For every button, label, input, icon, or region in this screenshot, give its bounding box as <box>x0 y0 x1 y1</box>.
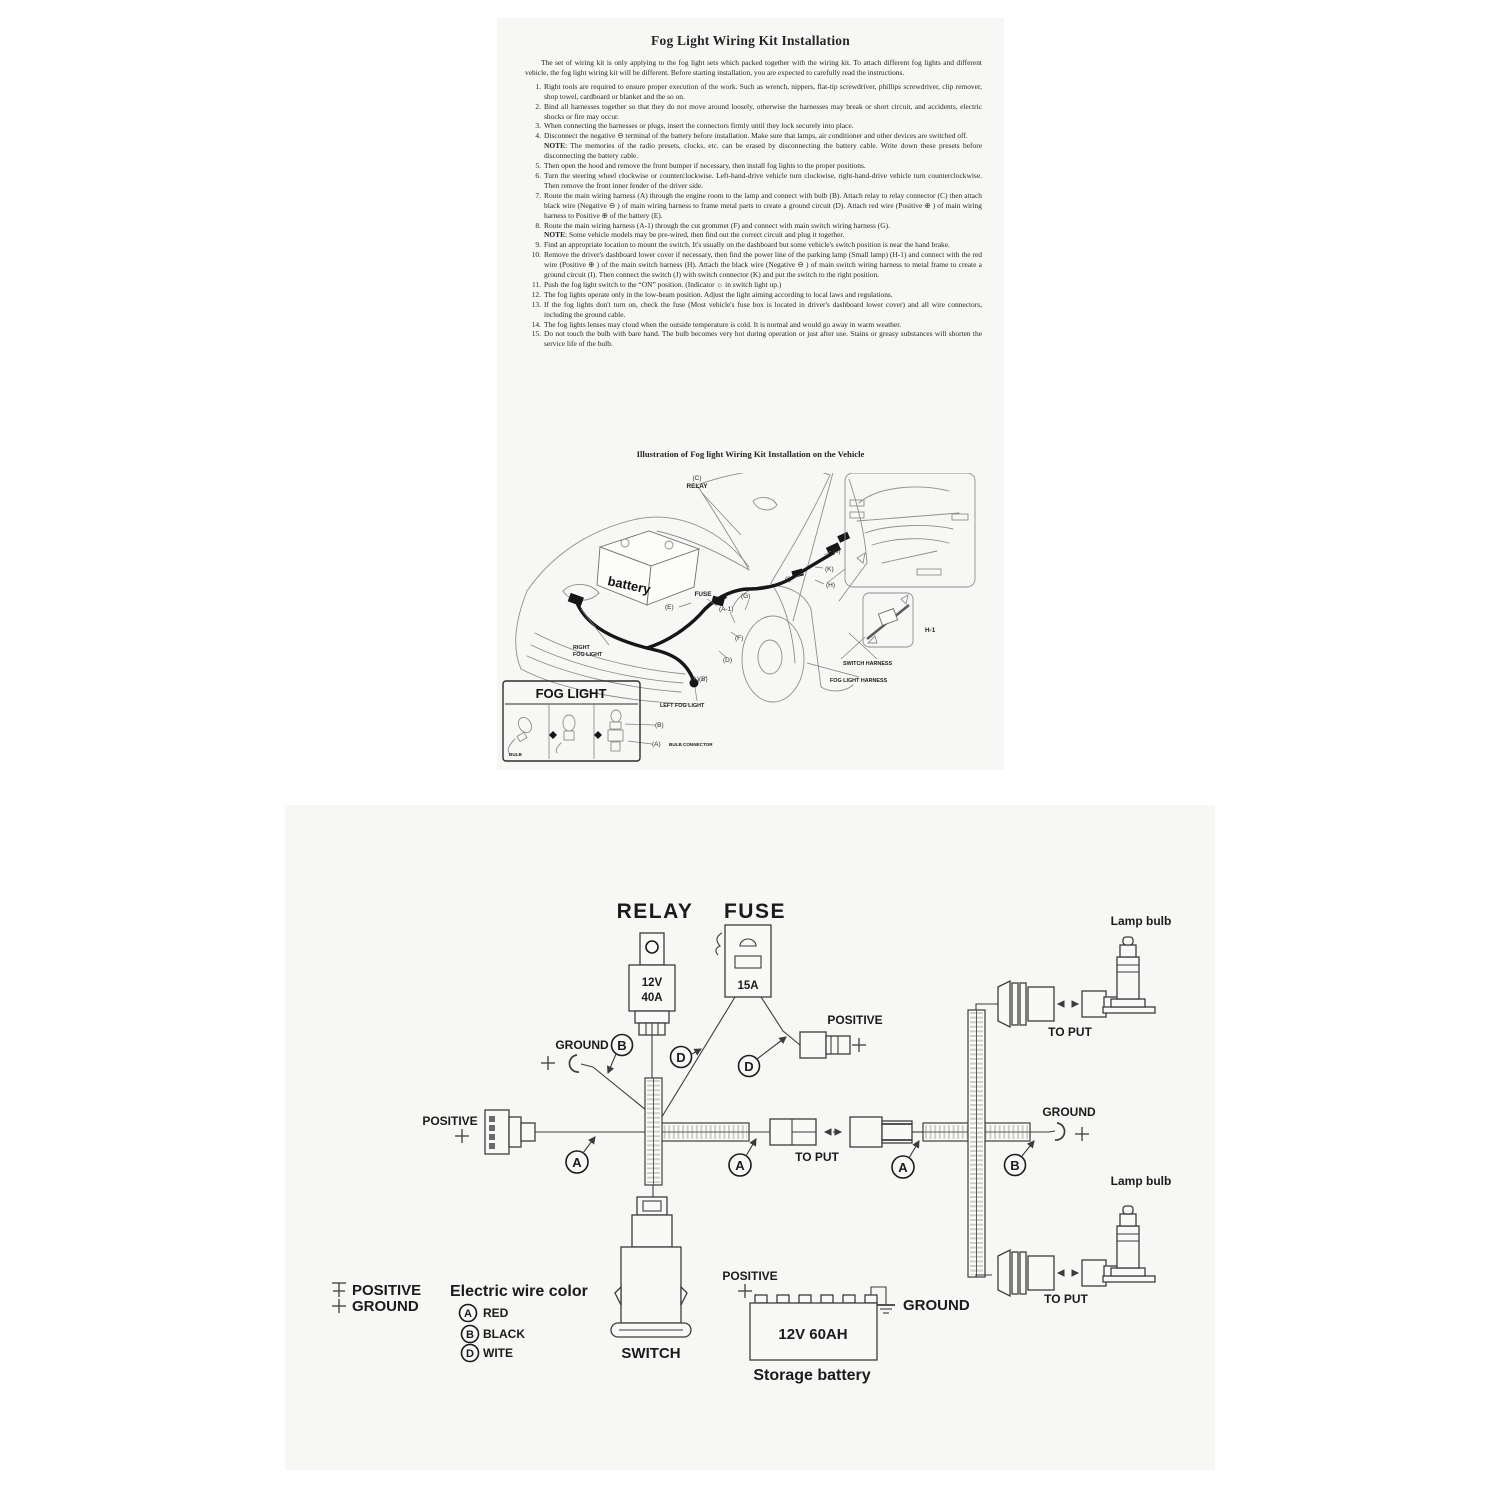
code-letter: B <box>1010 1158 1019 1173</box>
item-number: 5. <box>527 161 541 171</box>
legend-symbols <box>332 1283 346 1313</box>
label-switch-harness: SWITCH HARNESS <box>843 661 893 667</box>
ground-lug-right <box>1049 1123 1089 1141</box>
item-number: 11. <box>527 280 541 290</box>
loom-horizontal-left <box>657 1123 749 1141</box>
legend-entry-a: A RED <box>460 1305 509 1322</box>
list-item: 13.If the fog lights don't turn on, chec… <box>544 300 982 320</box>
label-f: (F) <box>735 635 743 642</box>
vehicle-illustration: battery (C) RELAY <box>497 473 1004 769</box>
item-text: Then open the hood and remove the front … <box>544 161 866 170</box>
wire-code-a2: A <box>729 1139 756 1176</box>
switch-illustration <box>611 1197 691 1337</box>
item-number: 10. <box>527 250 541 260</box>
list-item: 11.Push the fog light switch to the “ON”… <box>544 280 982 290</box>
fog-light-parts-box: FOG LIGHT BULB <box>503 681 640 761</box>
battery-rating: 12V 60AH <box>778 1326 847 1343</box>
item-text: Right tools are required to ensure prope… <box>544 82 982 101</box>
label-a1: (A-1) <box>719 606 733 613</box>
code-letter: A <box>572 1155 582 1170</box>
list-item: 1.Right tools are required to ensure pro… <box>544 82 982 102</box>
legend-ground: GROUND <box>352 1298 419 1315</box>
label-h1: H-1 <box>925 627 936 634</box>
item-text: Bind all harnesses together so that they… <box>544 102 982 121</box>
item-text: Push the fog light switch to the “ON” po… <box>544 280 781 289</box>
relay-amps: 40A <box>641 992 662 1004</box>
legend-entry-b: B BLACK <box>462 1326 526 1343</box>
label-relay: RELAY <box>686 483 708 490</box>
battery-label: Storage battery <box>753 1367 870 1384</box>
item-number: 9. <box>527 240 541 250</box>
item-text: Route the main wiring harness (A) throug… <box>544 191 982 220</box>
instruction-text-block: Fog Light Wiring Kit Installation The se… <box>497 18 1004 472</box>
item-number: 6. <box>527 171 541 181</box>
item-text: The fog lights operate only in the low-b… <box>544 290 893 299</box>
note: NOTE: Some vehicle models may be pre-wir… <box>544 230 982 240</box>
note-text: : Some vehicle models may be pre-wired, … <box>565 230 844 239</box>
list-item: 15.Do not touch the bulb with bare hand.… <box>544 329 982 349</box>
label-left-fog: LEFT FOG LIGHT <box>660 703 705 709</box>
label-a: (A) <box>652 741 661 748</box>
positive-label-battery: POSITIVE <box>722 1269 777 1283</box>
item-number: 3. <box>527 121 541 131</box>
legend-entry-d: D WITE <box>462 1345 514 1362</box>
positive-label-left: POSITIVE <box>422 1114 477 1128</box>
item-number: 12. <box>527 290 541 300</box>
fuse-amps: 15A <box>737 980 758 992</box>
illustration-title: Illustration of Fog light Wiring Kit Ins… <box>497 449 1004 459</box>
positive-label-fuse: POSITIVE <box>827 1013 882 1027</box>
positive-connector-fuse <box>800 1032 866 1058</box>
item-number: 8. <box>527 221 541 231</box>
item-number: 4. <box>527 131 541 141</box>
wire-code-a3: A <box>892 1141 919 1178</box>
item-text: Turn the steering wheel clockwise or cou… <box>544 171 982 190</box>
item-number: 15. <box>527 329 541 339</box>
loom-vertical-right <box>968 1010 985 1277</box>
item-number: 13. <box>527 300 541 310</box>
item-text: If the fog lights don't turn on, check t… <box>544 300 982 319</box>
h1-inset <box>863 593 913 647</box>
label-j: (J) <box>833 548 841 555</box>
list-item: 7.Route the main wiring harness (A) thro… <box>544 191 982 221</box>
lamp-wire-top <box>976 1004 998 1010</box>
switch-label: SWITCH <box>621 1345 680 1362</box>
code-letter: A <box>735 1158 745 1173</box>
label-e: (E) <box>665 604 674 611</box>
item-number: 1. <box>527 82 541 92</box>
to-put-label-top: TO PUT <box>1048 1025 1092 1039</box>
item-text: Find an appropriate location to mount th… <box>544 240 950 249</box>
wire-code-d2: D <box>739 1037 787 1077</box>
legend-title: Electric wire color <box>450 1283 588 1300</box>
lamp-bulb-label-top: Lamp bulb <box>1111 914 1172 928</box>
list-item: 2.Bind all harnesses together so that th… <box>544 102 982 122</box>
ground-label-right: GROUND <box>1042 1105 1096 1119</box>
label-d: (D) <box>723 657 732 664</box>
list-item: 3.When connecting the harnesses or plugs… <box>544 121 982 131</box>
label-bulb: BULB <box>509 752 522 757</box>
label-k: (K) <box>825 566 834 573</box>
fuse-illustration: 15A <box>716 925 771 997</box>
list-item: 9.Find an appropriate location to mount … <box>544 240 982 250</box>
intro-paragraph: The set of wiring kit is only applying t… <box>525 58 982 78</box>
lamp-socket-bottom <box>998 1206 1155 1296</box>
wire-code-d1: D <box>671 1047 702 1068</box>
note-label: NOTE <box>544 141 565 150</box>
item-number: 7. <box>527 191 541 201</box>
relay-illustration: 12V 40A <box>629 933 675 1035</box>
item-text: Remove the driver's dashboard lower cove… <box>544 250 982 279</box>
list-item: 14.The fog lights lenses may cloud when … <box>544 320 982 330</box>
item-text: Do not touch the bulb with bare hand. Th… <box>544 329 982 348</box>
fuse-wire-right <box>761 997 800 1045</box>
relay-volts: 12V <box>642 977 663 989</box>
legend-color: BLACK <box>483 1327 525 1341</box>
battery-illustration: battery <box>597 531 699 605</box>
storage-battery: 12V 60AH <box>738 1284 895 1360</box>
label-b: (B) <box>655 722 664 729</box>
fog-light-box-title: FOG LIGHT <box>536 686 607 701</box>
item-number: 2. <box>527 102 541 112</box>
to-put-label-bottom: TO PUT <box>1044 1292 1088 1306</box>
leader-lines <box>581 493 877 744</box>
legend-code: A <box>464 1308 472 1320</box>
legend-code: B <box>466 1329 474 1341</box>
car-outline <box>516 473 867 704</box>
list-item: 10.Remove the driver's dashboard lower c… <box>544 250 982 280</box>
label-fuse: FUSE <box>694 591 712 598</box>
lamp-bulb-label-bottom: Lamp bulb <box>1111 1174 1172 1188</box>
note-label: NOTE <box>544 230 565 239</box>
ground-label-left: GROUND <box>555 1038 609 1052</box>
legend-color: RED <box>483 1306 509 1320</box>
list-item: 8.Route the main wiring harness (A-1) th… <box>544 221 982 241</box>
code-letter: D <box>744 1059 753 1074</box>
label-c: (C) <box>692 475 701 482</box>
legend-code: D <box>466 1348 474 1360</box>
loom-vertical-left <box>645 1078 662 1185</box>
item-number: 14. <box>527 320 541 330</box>
mid-connector-pair <box>770 1117 912 1147</box>
list-item: 4.Disconnect the negative ⊖ terminal of … <box>544 131 982 161</box>
page-title: Fog Light Wiring Kit Installation <box>497 33 1004 49</box>
relay-title: RELAY <box>617 900 694 923</box>
wire-code-a1: A <box>566 1137 595 1173</box>
item-text: When connecting the harnesses or plugs, … <box>544 121 854 130</box>
legend-color: WITE <box>483 1346 513 1360</box>
ground-label-battery: GROUND <box>903 1297 970 1314</box>
code-letter: D <box>676 1050 685 1065</box>
list-item: 6.Turn the steering wheel clockwise or c… <box>544 171 982 191</box>
list-item: 5.Then open the hood and remove the fron… <box>544 161 982 171</box>
item-text: Disconnect the negative ⊖ terminal of th… <box>544 131 968 140</box>
dashboard-inset <box>845 473 975 587</box>
item-text: The fog lights lenses may cloud when the… <box>544 320 901 329</box>
code-letter: B <box>617 1038 626 1053</box>
label-ab: (A)(B) <box>690 676 707 683</box>
label-h: (H) <box>826 582 835 589</box>
fuse-title: FUSE <box>724 900 786 923</box>
instruction-sheet: Fog Light Wiring Kit Installation The se… <box>497 18 1004 770</box>
wiring-diagram: RELAY FUSE 12V 40A 15A POSITIVE <box>285 805 1215 1470</box>
note: NOTE: The memories of the radio presets,… <box>544 141 982 161</box>
label-right-fog-2: FOG LIGHT <box>573 652 603 658</box>
legend-positive: POSITIVE <box>352 1282 421 1299</box>
instruction-list: 1.Right tools are required to ensure pro… <box>544 82 982 349</box>
item-text: Route the main wiring harness (A-1) thro… <box>544 221 890 230</box>
ground-lug-left <box>541 1055 593 1072</box>
wire-code-b2: B <box>1005 1141 1035 1176</box>
lamp-socket-top <box>998 937 1155 1027</box>
page: { "colors": { "sheet_bg": "#f7f7f5", "in… <box>0 0 1500 1500</box>
wiring-diagram-sheet: RELAY FUSE 12V 40A 15A POSITIVE <box>285 805 1215 1470</box>
label-g: (G) <box>741 593 750 600</box>
label-i: (I) <box>785 576 791 583</box>
code-letter: A <box>898 1160 908 1175</box>
label-fog-light-harness: FOG LIGHT HARNESS <box>830 678 888 684</box>
list-item: 12.The fog lights operate only in the lo… <box>544 290 982 300</box>
to-put-label-mid: TO PUT <box>795 1150 839 1164</box>
wire-code-b1: B <box>608 1035 633 1074</box>
note-text: : The memories of the radio presets, clo… <box>544 141 982 160</box>
label-bulb-connector: BULB CONNECTOR <box>669 742 713 747</box>
label-right-fog-1: RIGHT <box>573 645 590 651</box>
